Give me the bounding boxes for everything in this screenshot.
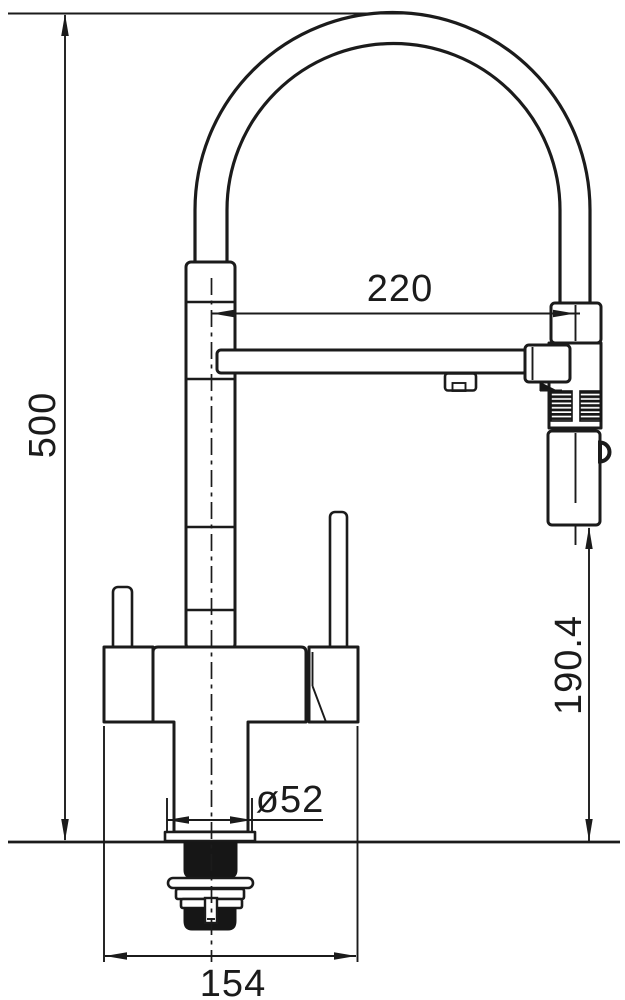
dimension-outlet-height: 190.4 bbox=[548, 527, 593, 841]
spout-reach-label: 220 bbox=[367, 268, 433, 310]
left-valve-block bbox=[104, 647, 153, 722]
dimension-spout-reach: 220 bbox=[212, 268, 580, 317]
knurl-grip-right bbox=[580, 391, 601, 421]
arm-bar bbox=[217, 350, 527, 373]
swivel-arm bbox=[217, 350, 527, 391]
threaded-shank bbox=[184, 842, 237, 878]
outlet-height-label: 190.4 bbox=[548, 615, 590, 715]
right-lever bbox=[330, 512, 347, 651]
column-body bbox=[186, 262, 235, 649]
sprayer-head bbox=[548, 431, 600, 525]
mount-diameter-label: ø52 bbox=[256, 779, 324, 821]
base-flange bbox=[165, 832, 255, 841]
sprayer-assembly bbox=[525, 303, 610, 545]
overall-height-label: 500 bbox=[22, 392, 64, 458]
right-handle-block bbox=[309, 647, 358, 722]
faucet-dimension-drawing: 500 220 190.4 ø52 154 bbox=[0, 0, 625, 1000]
spout-arc bbox=[195, 13, 590, 305]
left-lever bbox=[113, 587, 132, 651]
arm-clip bbox=[445, 374, 476, 391]
spout-arc-inner bbox=[227, 44, 560, 305]
faucet-column bbox=[186, 262, 235, 649]
base-width-label: 154 bbox=[200, 963, 266, 1000]
drawing-canvas: 500 220 190.4 ø52 154 bbox=[0, 0, 625, 1000]
mounting-hardware bbox=[165, 832, 255, 930]
knurl-grip-left bbox=[551, 391, 572, 421]
sprayer-button bbox=[600, 443, 610, 462]
spout-arc-outer bbox=[195, 13, 590, 305]
washer bbox=[168, 878, 253, 888]
